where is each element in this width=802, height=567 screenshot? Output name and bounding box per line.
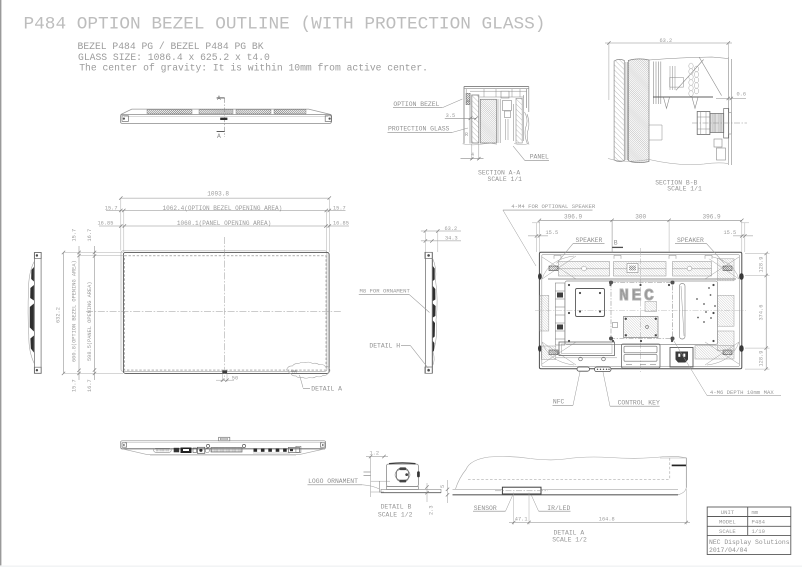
- svg-text:MODEL: MODEL: [719, 519, 736, 526]
- svg-text:SCALE 1/2: SCALE 1/2: [378, 511, 413, 518]
- svg-text:PROTECTION GLASS: PROTECTION GLASS: [388, 126, 450, 133]
- svg-text:OPTION BEZEL: OPTION BEZEL: [393, 101, 439, 108]
- svg-text:mm: mm: [752, 509, 759, 516]
- svg-text:16.85: 16.85: [333, 221, 349, 227]
- svg-text:598.5(PANEL OPENING AREA): 598.5(PANEL OPENING AREA): [87, 282, 93, 361]
- svg-text:CONTROL KEY: CONTROL KEY: [618, 400, 660, 407]
- svg-text:UNIT: UNIT: [721, 509, 735, 516]
- svg-text:GLASS SIZE: 1086.4 x 625.2 x t: GLASS SIZE: 1086.4 x 625.2 x t4.0: [78, 52, 270, 63]
- svg-text:SPEAKER: SPEAKER: [677, 237, 704, 244]
- svg-text:NFC: NFC: [553, 399, 565, 406]
- svg-text:SCALE 1/1: SCALE 1/1: [488, 176, 523, 183]
- svg-text:300: 300: [635, 214, 646, 221]
- svg-text:SCALE: SCALE: [719, 528, 736, 535]
- svg-text:The center of gravity: It is w: The center of gravity: It is within 10mm…: [79, 63, 428, 74]
- svg-text:5: 5: [440, 485, 446, 488]
- svg-text:1093.8: 1093.8: [207, 190, 229, 197]
- svg-text:M8 FOR ORNAMENT: M8 FOR ORNAMENT: [360, 288, 411, 295]
- svg-text:4: 4: [471, 152, 474, 158]
- svg-text:47.1: 47.1: [515, 516, 528, 522]
- svg-text:SCALE 1/1: SCALE 1/1: [667, 186, 702, 193]
- svg-text:15.5: 15.5: [724, 230, 737, 236]
- svg-text:BEZEL P484 PG / BEZEL P484 PG: BEZEL P484 PG / BEZEL P484 PG BK: [78, 41, 264, 52]
- svg-text:16.7: 16.7: [87, 379, 93, 392]
- svg-text:16.7: 16.7: [87, 229, 93, 242]
- svg-text:4-M6 DEPTH 10mm MAX: 4-M6 DEPTH 10mm MAX: [710, 389, 774, 396]
- svg-text:SPEAKER: SPEAKER: [576, 237, 603, 244]
- svg-text:P484 OPTION BEZEL OUTLINE (WIT: P484 OPTION BEZEL OUTLINE (WITH PROTECTI…: [24, 15, 546, 35]
- svg-text:LOGO ORNAMENT: LOGO ORNAMENT: [308, 478, 358, 485]
- svg-text:396.9: 396.9: [703, 214, 722, 221]
- svg-text:2017/04/04: 2017/04/04: [709, 547, 748, 554]
- svg-text:1/10: 1/10: [752, 528, 766, 535]
- svg-text:A: A: [217, 133, 221, 140]
- svg-text:15.7: 15.7: [72, 229, 78, 242]
- svg-text:DETAIL A: DETAIL A: [554, 529, 585, 536]
- svg-text:A: A: [217, 95, 221, 102]
- svg-text:4-M4 FOR OPTIONAL SPEAKER: 4-M4 FOR OPTIONAL SPEAKER: [511, 203, 596, 210]
- svg-text:NEC Display Solutions: NEC Display Solutions: [709, 539, 790, 546]
- svg-text:DETAIL B: DETAIL B: [381, 503, 412, 510]
- svg-text:632.2: 632.2: [56, 307, 62, 323]
- svg-text:374.6: 374.6: [759, 305, 765, 321]
- svg-text:0.6: 0.6: [737, 91, 747, 97]
- svg-text:B: B: [614, 240, 618, 247]
- svg-text:600.8(OPTION BEZEL OPENING ARE: 600.8(OPTION BEZEL OPENING AREA): [72, 260, 78, 362]
- svg-text:P484: P484: [752, 519, 766, 526]
- svg-text:16.85: 16.85: [98, 221, 114, 227]
- svg-text:128.9: 128.9: [759, 257, 765, 273]
- svg-text:15.7: 15.7: [72, 379, 78, 392]
- svg-text:SCALE 1/2: SCALE 1/2: [552, 537, 587, 544]
- svg-text:50: 50: [232, 376, 238, 382]
- svg-text:15.5: 15.5: [546, 230, 559, 236]
- svg-text:PANEL: PANEL: [530, 154, 549, 161]
- svg-text:2.3: 2.3: [429, 505, 435, 515]
- svg-text:1062.4(OPTION BEZEL OPENING AR: 1062.4(OPTION BEZEL OPENING AREA): [163, 205, 283, 212]
- svg-text:DETAIL H: DETAIL H: [369, 343, 400, 350]
- svg-text:128.9: 128.9: [759, 351, 765, 367]
- svg-text:DETAIL A: DETAIL A: [311, 386, 342, 393]
- svg-text:396.9: 396.9: [564, 214, 583, 221]
- svg-text:164.8: 164.8: [599, 516, 615, 522]
